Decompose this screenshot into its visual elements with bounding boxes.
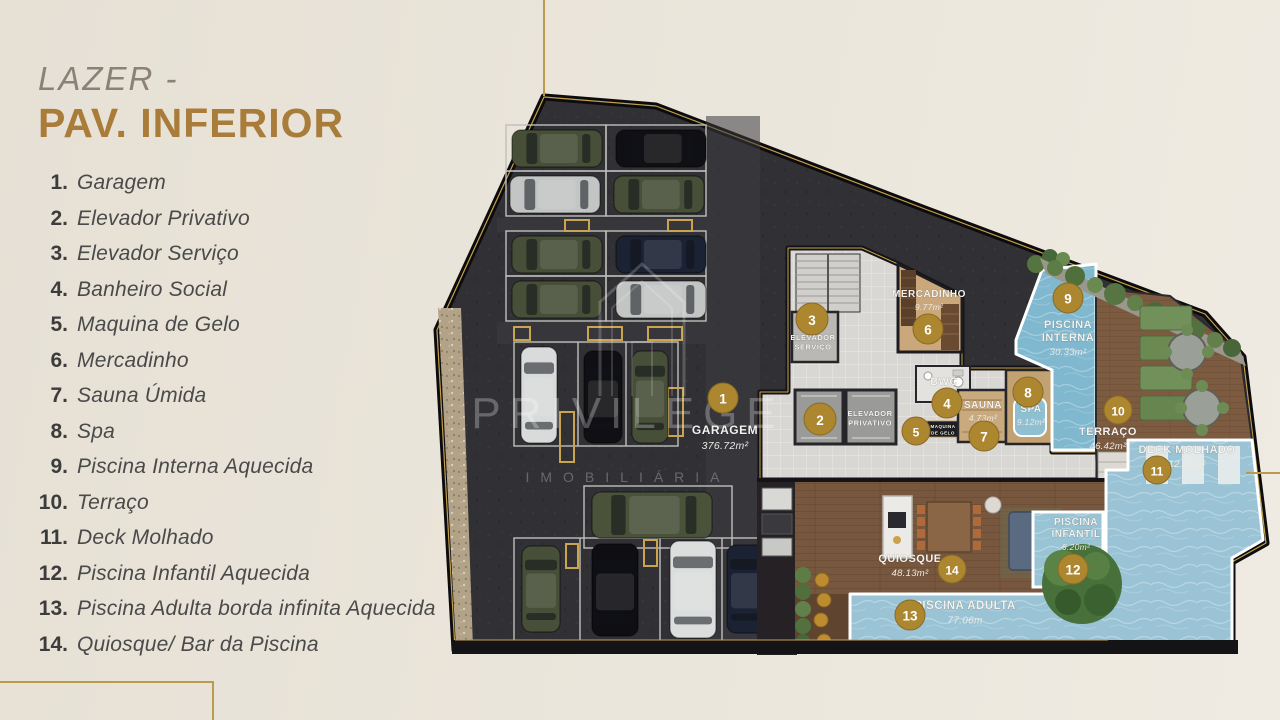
room-label: ELEVADORPRIVATIVO	[847, 409, 892, 428]
svg-text:PRIVATIVO: PRIVATIVO	[848, 419, 892, 428]
room-label: BWC	[930, 376, 958, 388]
tree	[1042, 544, 1122, 624]
plan-badge: 11	[1143, 456, 1171, 484]
svg-text:9.12m²: 9.12m²	[1017, 417, 1046, 427]
plan-badge: 6	[913, 314, 943, 344]
svg-text:3: 3	[808, 313, 816, 328]
stairs	[796, 254, 860, 312]
car	[592, 492, 712, 538]
plan-badge: 10	[1104, 396, 1132, 424]
car	[592, 544, 638, 636]
plan-badge: 8	[1013, 377, 1043, 407]
svg-text:77.06m: 77.06m	[947, 616, 982, 627]
svg-text:MERCADINHO: MERCADINHO	[892, 289, 966, 300]
plan-badge: 7	[969, 421, 999, 451]
svg-text:9: 9	[1064, 292, 1072, 307]
car	[512, 281, 602, 318]
svg-text:INTERNA: INTERNA	[1042, 332, 1094, 344]
car	[616, 130, 706, 167]
plan-badge: 5	[902, 417, 930, 445]
car	[512, 236, 602, 273]
svg-text:INFANTIL: INFANTIL	[1052, 529, 1101, 540]
svg-text:8: 8	[1024, 386, 1032, 401]
svg-text:ELEVADOR: ELEVADOR	[847, 409, 892, 418]
floor-plan: PRIVILEGE IMOBILIÁRIA GARAGEM376.72m²ELE…	[0, 0, 1280, 720]
svg-text:30.33m²: 30.33m²	[1050, 347, 1087, 358]
bottom-wall	[452, 640, 1238, 654]
svg-text:5: 5	[913, 425, 920, 439]
svg-text:9.77m²: 9.77m²	[915, 302, 944, 312]
car	[616, 236, 706, 273]
plan-badge: 1	[708, 383, 738, 413]
svg-text:7: 7	[980, 430, 988, 445]
svg-text:DE GELO: DE GELO	[931, 431, 955, 436]
svg-text:BWC: BWC	[930, 376, 958, 388]
svg-text:SERVIÇO: SERVIÇO	[794, 343, 831, 352]
car	[522, 546, 560, 632]
car	[512, 130, 602, 167]
svg-text:1: 1	[719, 392, 727, 407]
plan-badge: 9	[1053, 283, 1083, 313]
svg-text:2: 2	[816, 413, 824, 428]
svg-text:13: 13	[902, 609, 918, 624]
plan-badge: 12	[1058, 554, 1088, 584]
car	[616, 281, 706, 318]
plan-badge: 14	[938, 555, 966, 583]
svg-text:11: 11	[1151, 464, 1164, 478]
svg-text:14: 14	[945, 563, 959, 577]
svg-text:376.72m²: 376.72m²	[702, 440, 749, 452]
svg-text:10: 10	[1111, 404, 1125, 418]
svg-text:TERRAÇO: TERRAÇO	[1079, 426, 1137, 438]
room-label: ELEVADORSERVIÇO	[790, 333, 835, 352]
plan-badge: 4	[932, 388, 962, 418]
plan-badge: 13	[895, 600, 925, 630]
svg-text:QUIOSQUE: QUIOSQUE	[878, 553, 941, 565]
svg-text:48.13m²: 48.13m²	[892, 568, 929, 579]
svg-text:4: 4	[943, 397, 951, 412]
svg-text:PISCINA: PISCINA	[1054, 517, 1098, 528]
svg-text:DECK MOLHADO: DECK MOLHADO	[1138, 444, 1235, 456]
svg-text:PISCINA: PISCINA	[1044, 319, 1092, 331]
car	[510, 176, 600, 213]
svg-text:6.20m²: 6.20m²	[1062, 542, 1091, 552]
car	[670, 541, 716, 638]
svg-text:PISCINA ADULTA: PISCINA ADULTA	[914, 600, 1016, 612]
svg-text:12.83m²: 12.83m²	[1169, 459, 1206, 470]
svg-text:SAUNA: SAUNA	[964, 400, 1002, 411]
room-label: PISCINAINTERNA30.33m²	[1042, 319, 1094, 358]
svg-text:MAQUINA: MAQUINA	[931, 424, 956, 429]
plan-badge: 2	[804, 403, 836, 435]
room-label: MAQUINADE GELO	[931, 424, 956, 436]
plan-badge: 3	[796, 303, 828, 335]
car	[614, 176, 704, 213]
svg-text:GARAGEM: GARAGEM	[692, 423, 758, 437]
svg-text:46.42m²: 46.42m²	[1090, 441, 1127, 452]
svg-text:12: 12	[1065, 563, 1080, 578]
svg-text:6: 6	[924, 323, 932, 338]
gold-corner-rect	[0, 682, 213, 720]
watermark-sub: IMOBILIÁRIA	[525, 469, 730, 485]
